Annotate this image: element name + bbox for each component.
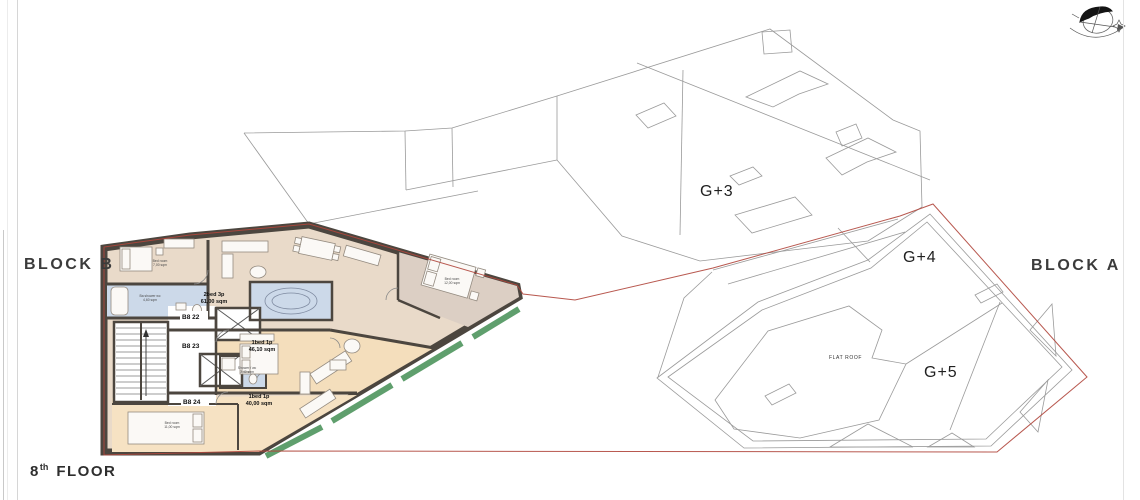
g4-edge-3 — [838, 228, 870, 262]
sink — [176, 303, 186, 310]
level-label-g4: G+4 — [903, 249, 937, 266]
g3-dormer-2 — [826, 138, 896, 175]
dresser-b824 — [300, 372, 310, 394]
sofa-2 — [222, 254, 233, 278]
g5-vent-1 — [765, 384, 796, 405]
g3-dormer-1 — [746, 71, 828, 107]
g3-northeast-corner — [893, 120, 922, 207]
unit-id-b822: B8 22 — [182, 314, 200, 321]
floor-number: 8 — [30, 463, 40, 480]
unit-area-b824: 40,00 sqm — [246, 401, 273, 407]
g5-vent-2 — [975, 284, 1003, 303]
unit-id-b824: B8 24 — [183, 399, 201, 406]
bathtub — [111, 287, 128, 315]
block-b-title: BLOCK B — [24, 256, 114, 274]
coffee-table — [250, 266, 266, 278]
floor-plan-sheet: B8 22 B8 23 B8 24 2bed 3p 61,00 sqm 1bed… — [0, 0, 1140, 500]
level-label-g5: G+5 — [924, 364, 958, 381]
parcel-top-boundary — [244, 29, 893, 133]
floor-word: FLOOR — [56, 463, 116, 480]
g4-edge-1 — [713, 219, 898, 270]
room-area-bed1: 7,00 sqm — [153, 263, 167, 267]
g4-edge-2 — [728, 232, 905, 284]
wedge-seam-2 — [452, 128, 453, 187]
table-b823 — [344, 339, 360, 353]
g3-skylight-1 — [636, 103, 676, 128]
room-area-bed2: 11,00 sqm — [164, 425, 180, 429]
g3-valley — [680, 70, 683, 235]
wedge-inner-edge — [406, 160, 557, 190]
sheet-edge-right — [1123, 0, 1124, 500]
unit-type-b823: 1bed 1p — [252, 340, 273, 346]
g5-roof-inner-ring — [668, 222, 1062, 441]
sofa-1 — [222, 241, 268, 252]
sheet-edge-left-lower — [3, 230, 4, 500]
sheet-edge-left-outer — [7, 0, 8, 500]
g5-gable-2 — [928, 433, 974, 447]
unit-type-b822: 2bed 3p — [204, 292, 225, 298]
g3-lower-edge — [557, 96, 922, 261]
g3-skylight-3 — [735, 197, 812, 233]
shower-tray — [222, 358, 235, 370]
north-arrow-icon — [1070, 6, 1125, 38]
room-area-shower: 3,40 sqm — [240, 370, 254, 374]
room-area-bath1: 4,60 sqm — [143, 298, 157, 302]
unit-area-b823: 46,10 sqm — [249, 347, 276, 353]
wedge-left-edge — [244, 133, 309, 224]
site-plan-drawing: B8 22 B8 23 B8 24 2bed 3p 61,00 sqm 1bed… — [0, 0, 1140, 500]
wedge-bottom-edge — [309, 191, 478, 224]
sheet-edge-left — [17, 0, 18, 500]
floor-title: 8thFLOOR — [30, 462, 116, 480]
block-b-floor-plan: B8 22 B8 23 B8 24 2bed 3p 61,00 sqm 1bed… — [104, 225, 519, 456]
level-label-g3: G+3 — [700, 183, 734, 200]
g5-gable-1 — [830, 424, 913, 447]
floor-ordinal: th — [40, 462, 49, 472]
g5-roof-outline — [657, 214, 1072, 448]
g3-skylight-2 — [730, 167, 762, 185]
block-a-title: BLOCK A — [1031, 257, 1121, 275]
g4-west-wing — [658, 272, 712, 377]
room-area-bed3: 12,00 sqm — [444, 281, 460, 285]
wedge-seam-1 — [405, 131, 406, 190]
unit-id-b823: B8 23 — [182, 343, 200, 350]
g5-flat-roof-outline — [715, 306, 906, 438]
unit-type-b824: 1bed 1p — [249, 394, 270, 400]
unit-area-b822: 61,00 sqm — [201, 299, 228, 305]
flat-roof-label: FLAT ROOF — [829, 355, 862, 361]
